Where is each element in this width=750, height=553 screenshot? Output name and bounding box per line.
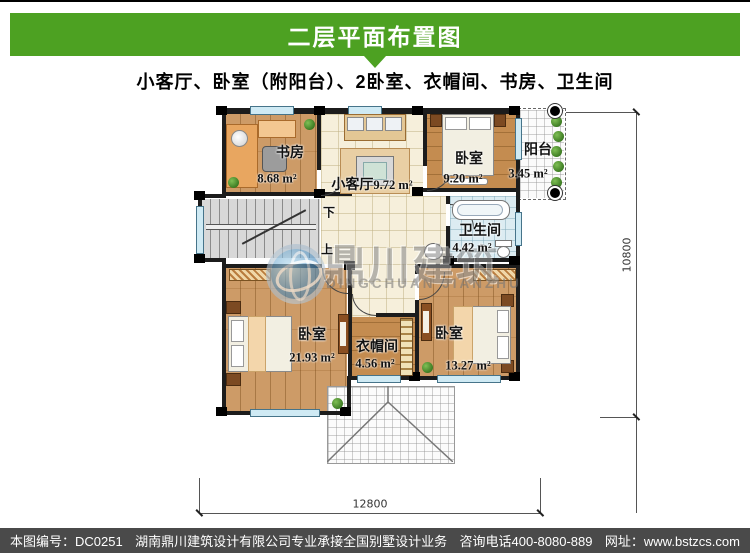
living-label: 小客厅9.72 m² <box>331 174 412 194</box>
sofa-cushion <box>366 117 383 131</box>
study-area: 8.68 m² <box>257 172 296 187</box>
balcony-plant <box>553 161 564 172</box>
stair-up-label: 上 <box>321 241 333 258</box>
nightstand <box>494 114 506 127</box>
page-title: 二层平面布置图 <box>288 18 463 52</box>
title-banner: 二层平面布置图 <box>10 13 740 56</box>
wardrobe <box>473 269 516 281</box>
pillow <box>231 320 244 342</box>
floor-plan-page: 二层平面布置图 小客厅、卧室（附阳台）、2卧室、衣帽间、书房、卫生间 <box>0 0 750 553</box>
bottom-dim-ext-right <box>540 478 541 513</box>
right-dimension-line <box>636 112 637 513</box>
stair-window <box>196 206 204 254</box>
roof-hip-lines <box>327 386 453 462</box>
wall-left-lower <box>222 262 226 415</box>
balcony-label: 阳台 <box>524 139 552 159</box>
balcony-column <box>548 186 562 200</box>
stair-rail <box>206 224 316 230</box>
top-border <box>0 0 750 2</box>
room-list-subtitle: 小客厅、卧室（附阳台）、2卧室、衣帽间、书房、卫生间 <box>0 68 750 94</box>
study-window <box>250 106 294 115</box>
wall-bedroom1327-left <box>415 300 419 380</box>
bedroom2193-label: 卧室 <box>298 324 326 344</box>
bathroom-window <box>515 212 522 246</box>
banner-pointer <box>364 56 386 68</box>
balcony-plant <box>551 146 562 157</box>
balcony-column <box>548 104 562 118</box>
wardrobe <box>229 269 271 281</box>
column <box>412 187 423 196</box>
closet-window <box>357 375 401 383</box>
company-name: 湖南鼎川建筑设计有限公司专业承接全国别墅设计业务 <box>135 531 447 550</box>
phone-number: 咨询电话400-8080-889 <box>460 531 593 550</box>
pillow <box>445 117 467 130</box>
wall-stair-bedroom <box>222 264 322 268</box>
bottom-dimension-line <box>199 513 540 514</box>
right-dim-ext-top <box>566 112 638 113</box>
column <box>314 106 325 115</box>
bedroom1327-label: 卧室 <box>435 323 463 343</box>
bedroom1327-area: 13.27 m² <box>445 359 490 374</box>
bedroom1327-window <box>437 375 501 383</box>
nightstand <box>430 114 442 127</box>
nightstand <box>226 301 241 314</box>
right-dimension-value: 10800 <box>621 238 634 273</box>
wall-study-right <box>317 108 321 170</box>
wall-living-bedroom <box>423 108 427 166</box>
column <box>194 191 205 200</box>
bedroom-plant <box>332 398 343 409</box>
tv <box>340 322 346 346</box>
column <box>194 254 205 263</box>
study-label: 书房 <box>276 142 304 162</box>
column <box>509 256 520 265</box>
study-plant <box>228 177 239 188</box>
desk-lamp <box>231 130 248 147</box>
pillow <box>497 310 509 333</box>
nightstand <box>226 373 241 386</box>
column <box>412 106 423 115</box>
sofa-cushion <box>385 117 402 131</box>
bathroom-label: 卫生间 <box>459 220 501 240</box>
column <box>509 106 520 115</box>
column <box>443 256 454 265</box>
bedroom2193-area: 21.93 m² <box>289 351 334 366</box>
column <box>340 407 351 416</box>
pillow <box>231 345 244 367</box>
balcony-plant <box>553 131 564 142</box>
closet-label: 衣帽间 <box>356 336 398 356</box>
bottom-dim-ext-left <box>199 478 200 513</box>
bedroom920-balcony-window <box>515 118 522 160</box>
bathtub-basin <box>457 204 503 216</box>
sofa-cushion <box>347 117 364 131</box>
website: 网址：www.bstzcs.com <box>605 531 740 550</box>
footer-bar: 本图编号：DC0251 湖南鼎川建筑设计有限公司专业承接全国别墅设计业务 咨询电… <box>0 528 750 553</box>
balcony-area: 3.45 m² <box>508 167 547 182</box>
drawing-serial: 本图编号：DC0251 <box>10 531 123 550</box>
bottom-dimension-value: 12800 <box>353 498 388 511</box>
closet-area: 4.56 m² <box>355 357 394 372</box>
bedroom2193-window <box>250 409 320 417</box>
washbasin <box>424 243 443 260</box>
column <box>216 407 227 416</box>
wall-bedroom1327-top <box>415 264 520 268</box>
column <box>216 106 227 115</box>
pillow <box>497 336 509 359</box>
bed-blanket <box>248 316 266 372</box>
tv <box>423 311 429 333</box>
wall-closet-top <box>376 313 415 317</box>
study-plant <box>304 119 315 130</box>
bedroom920-label: 卧室 <box>455 148 483 168</box>
bathroom-area: 4.42 m² <box>452 241 491 256</box>
stair-down-label: 下 <box>323 204 335 221</box>
bedroom920-area: 9.20 m² <box>443 172 482 187</box>
study-desk-return <box>258 120 296 138</box>
toilet-bowl <box>497 246 510 258</box>
right-dim-ext-bottom <box>600 417 638 418</box>
column <box>509 372 520 381</box>
bedroom-plant <box>422 362 433 373</box>
pillow <box>469 117 491 130</box>
wall-bath-left-stub <box>446 196 450 204</box>
closet-shelves <box>400 318 413 376</box>
